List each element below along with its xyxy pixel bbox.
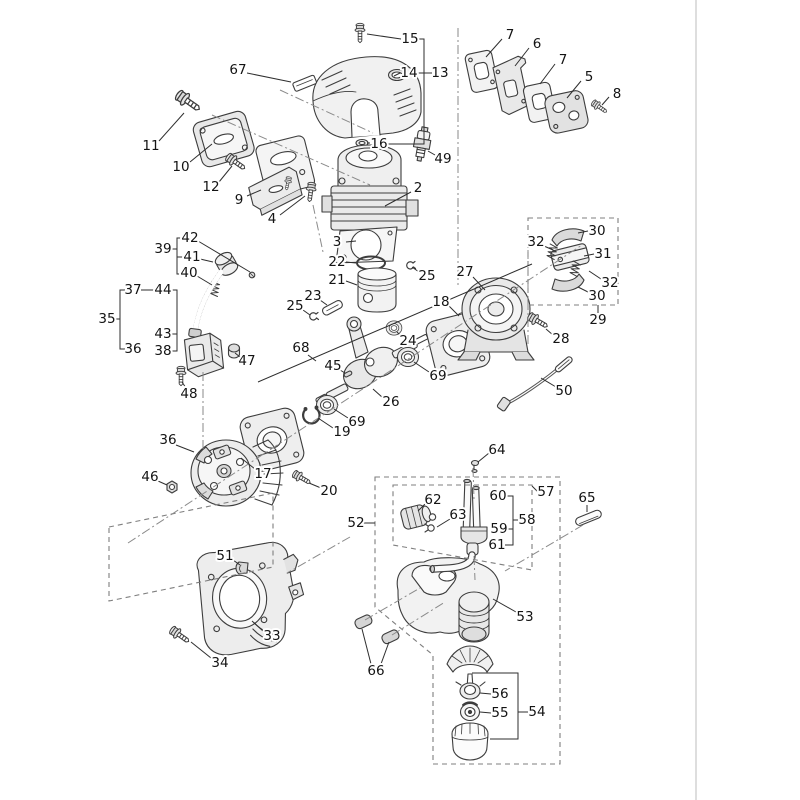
leader-line [480,693,491,694]
leader-line [158,481,167,485]
leader-line [346,281,357,285]
part-label-7: 7 [559,52,568,68]
part-label-8: 8 [613,86,622,102]
part-label-36: 36 [159,432,176,448]
part-label-69: 69 [348,414,365,430]
part-label-13: 13 [431,65,448,81]
exploded-parts-diagram: 1567141376758111016491292432242394140212… [0,0,800,800]
part-label-44: 44 [154,282,171,298]
piston-pin-drawing [321,299,343,316]
cap-retainer-drawing [456,682,485,699]
cover-bolt-icon [355,23,365,42]
ignition-coil-drawing [184,332,224,378]
part-label-15: 15 [401,31,418,47]
leader-line [493,599,516,612]
cap-tether-drawing [447,646,493,688]
leader-line [309,483,321,488]
fan-housing-drawing [195,540,309,658]
part-label-68: 68 [292,340,309,356]
flywheel-nut-drawing [167,481,177,493]
leader-line [247,73,291,82]
circlip-icon [310,313,319,320]
leader-line [303,310,310,315]
leader-line [318,418,333,428]
part-label-4: 4 [268,211,277,227]
part-label-55: 55 [491,705,508,721]
part-label-25: 25 [418,268,435,284]
parts-diagram-page: 1567141376758111016491292432242394140212… [0,0,800,800]
part-label-41: 41 [183,249,200,265]
part-label-64: 64 [488,442,505,458]
leader-line [578,287,588,292]
part-label-48: 48 [180,386,197,402]
part-label-23: 23 [304,288,321,304]
part-label-17: 17 [254,466,271,482]
part-label-5: 5 [585,69,594,85]
part-label-58: 58 [518,512,535,528]
part-label-52: 52 [347,515,364,531]
part-label-47: 47 [238,353,255,369]
circlip-icon [407,262,416,269]
part-label-43: 43 [154,326,171,342]
muffler-body-5-drawing [543,89,589,134]
cap-screw-drawing [249,272,255,278]
part-label-49: 49 [434,151,451,167]
part-label-69: 69 [429,368,446,384]
part-label-42: 42 [181,230,198,246]
leader-line [219,166,232,182]
part-label-27: 27 [456,264,473,280]
part-label-30: 30 [588,288,605,304]
part-label-50: 50 [555,383,572,399]
part-label-39: 39 [154,241,171,257]
leader-line [540,64,555,84]
leader-line [334,409,348,418]
part-label-46: 46 [141,469,158,485]
part-label-29: 29 [589,312,606,328]
part-label-60: 60 [489,488,506,504]
part-label-63: 63 [449,507,466,523]
part-label-12: 12 [202,179,219,195]
cap-gasket-drawing [461,702,480,720]
vent-valve-drawing [472,461,479,473]
centerline [505,525,583,571]
leader-line [449,306,459,316]
coil-bolt-icon [176,366,186,385]
clutch-shoe-upper-drawing [552,229,584,246]
piston-drawing [358,268,396,312]
leader-line [367,34,401,39]
part-label-16: 16 [370,136,387,152]
part-label-51: 51 [216,548,233,564]
case-bolt-icon [291,469,313,487]
part-label-18: 18 [432,294,449,310]
leader-line [362,629,371,664]
cylinder-drawing [322,145,418,230]
clutch-shoe-lower-drawing [552,274,584,291]
leader-line [414,362,429,372]
part-label-35: 35 [98,311,115,327]
part-label-25: 25 [286,298,303,314]
part-label-30: 30 [588,223,605,239]
part-label-53: 53 [516,609,533,625]
part-label-65: 65 [578,490,595,506]
muffler-drawing [191,109,256,168]
part-label-37: 37 [124,282,141,298]
leader-line [381,642,389,664]
part-label-20: 20 [320,483,337,499]
part-label-32: 32 [527,234,544,250]
leader-line [197,276,212,285]
muffler-screw-icon [590,98,609,115]
part-label-26: 26 [382,394,399,410]
leader-line [541,378,556,387]
leader-line [486,39,502,57]
part-label-66: 66 [367,663,384,679]
leader-line [200,259,213,262]
leader-line [589,271,601,279]
part-label-31: 31 [594,246,611,262]
part-label-36: 36 [124,341,141,357]
part-label-10: 10 [172,159,189,175]
ht-lead-wire-drawing [195,272,221,334]
part-label-3: 3 [333,234,342,250]
part-label-38: 38 [154,343,171,359]
leader-line [176,445,194,452]
pin-65-drawing [574,509,602,527]
oil-seal-drawing [303,406,319,423]
leader-line [478,453,489,462]
part-label-7: 7 [506,27,515,43]
part-label-34: 34 [211,655,228,671]
part-label-6: 6 [533,36,542,52]
muffler-bolt-icon [173,88,203,115]
part-label-28: 28 [552,331,569,347]
part-label-14: 14 [400,65,417,81]
part-label-11: 11 [142,138,159,154]
housing-bolt-icon [168,625,192,646]
clutch-bolt-icon [526,311,550,331]
fuel-cap-drawing [452,723,488,760]
tank-grommet-drawing [354,614,374,630]
part-label-9: 9 [235,192,244,208]
part-label-57: 57 [537,484,554,500]
part-label-62: 62 [424,492,441,508]
part-label-54: 54 [528,704,545,720]
hose-clip-drawing [425,524,434,532]
part-label-24: 24 [399,333,416,349]
part-label-33: 33 [263,628,280,644]
part-label-45: 45 [324,358,341,374]
part-label-2: 2 [414,180,423,196]
part-label-40: 40 [180,265,197,281]
leader-line [480,712,491,713]
part-label-59: 59 [490,521,507,537]
leader-line [602,97,609,105]
part-label-22: 22 [328,254,345,270]
part-label-56: 56 [491,686,508,702]
leader-line [159,113,184,141]
part-label-67: 67 [229,62,246,78]
part-label-21: 21 [328,272,345,288]
centerline [287,537,350,573]
part-label-61: 61 [488,537,505,553]
leader-line [437,519,450,527]
